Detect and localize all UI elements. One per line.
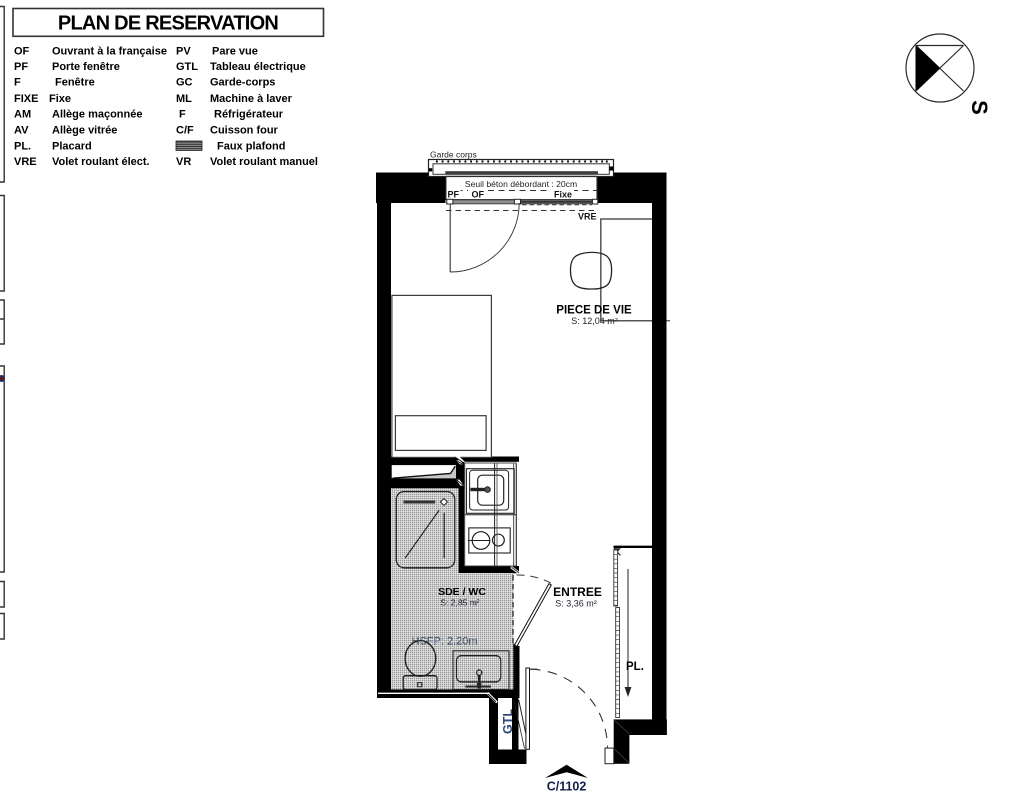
svg-text:Pare vue: Pare vue [212,45,258,57]
svg-text:Volet roulant élect.: Volet roulant élect. [52,156,150,168]
svg-text:Tableau électrique: Tableau électrique [210,61,306,73]
svg-text:PL.: PL. [14,140,31,152]
svg-text:VRE: VRE [578,212,597,222]
svg-text:Fixe: Fixe [554,190,572,200]
svg-text:Seuil béton débordant : 20cm: Seuil béton débordant : 20cm [465,179,577,189]
svg-text:VR: VR [176,156,191,168]
svg-text:F: F [179,109,186,121]
svg-text:C/1102: C/1102 [547,780,587,794]
svg-text:Garde-corps: Garde-corps [210,77,275,89]
svg-text:PV: PV [176,45,191,57]
svg-text:Allège maçonnée: Allège maçonnée [52,109,142,121]
svg-text:Placard: Placard [52,140,92,152]
svg-text:S: 12,04 m²: S: 12,04 m² [571,316,618,326]
svg-text:FIXE: FIXE [14,93,38,105]
svg-text:PIECE DE VIE: PIECE DE VIE [556,305,632,317]
svg-text:Fixe: Fixe [49,93,71,105]
svg-text:S: S [967,100,992,115]
svg-text:ML: ML [176,93,192,105]
svg-text:PLAN DE RESERVATION: PLAN DE RESERVATION [58,13,279,35]
svg-text:C/F: C/F [176,125,194,137]
svg-text:PF: PF [14,61,28,73]
svg-text:S: 3,36 m²: S: 3,36 m² [555,598,597,608]
svg-text:Fenêtre: Fenêtre [55,77,95,89]
svg-text:VRE: VRE [14,156,37,168]
svg-text:F: F [14,77,21,89]
svg-text:Garde corps: Garde corps [430,150,477,160]
svg-text:SDE / WC: SDE / WC [438,586,486,598]
svg-text:GTL: GTL [176,61,198,73]
svg-text:Réfrigérateur: Réfrigérateur [214,109,284,121]
svg-text:OF: OF [14,45,30,57]
svg-text:AV: AV [14,125,29,137]
svg-text:PF: PF [448,189,460,199]
svg-text:PL.: PL. [626,661,644,673]
svg-text:Machine à laver: Machine à laver [210,93,293,105]
svg-text:HSFP: 2.20m: HSFP: 2.20m [412,636,478,648]
svg-text:Allège vitrée: Allège vitrée [52,125,117,137]
svg-text:GC: GC [176,77,193,89]
svg-text:Volet roulant manuel: Volet roulant manuel [210,156,318,168]
svg-text:Faux plafond: Faux plafond [217,140,285,152]
svg-text:S: 2,85 m²: S: 2,85 m² [440,597,479,607]
svg-text:Ouvrant à la française: Ouvrant à la française [52,45,167,57]
svg-text:ENTREE: ENTREE [553,585,602,599]
svg-text:AM: AM [14,109,31,121]
svg-text:Cuisson four: Cuisson four [210,125,279,137]
svg-text:OF: OF [472,189,485,199]
svg-text:Porte fenêtre: Porte fenêtre [52,61,120,73]
svg-text:GTL: GTL [501,709,515,734]
